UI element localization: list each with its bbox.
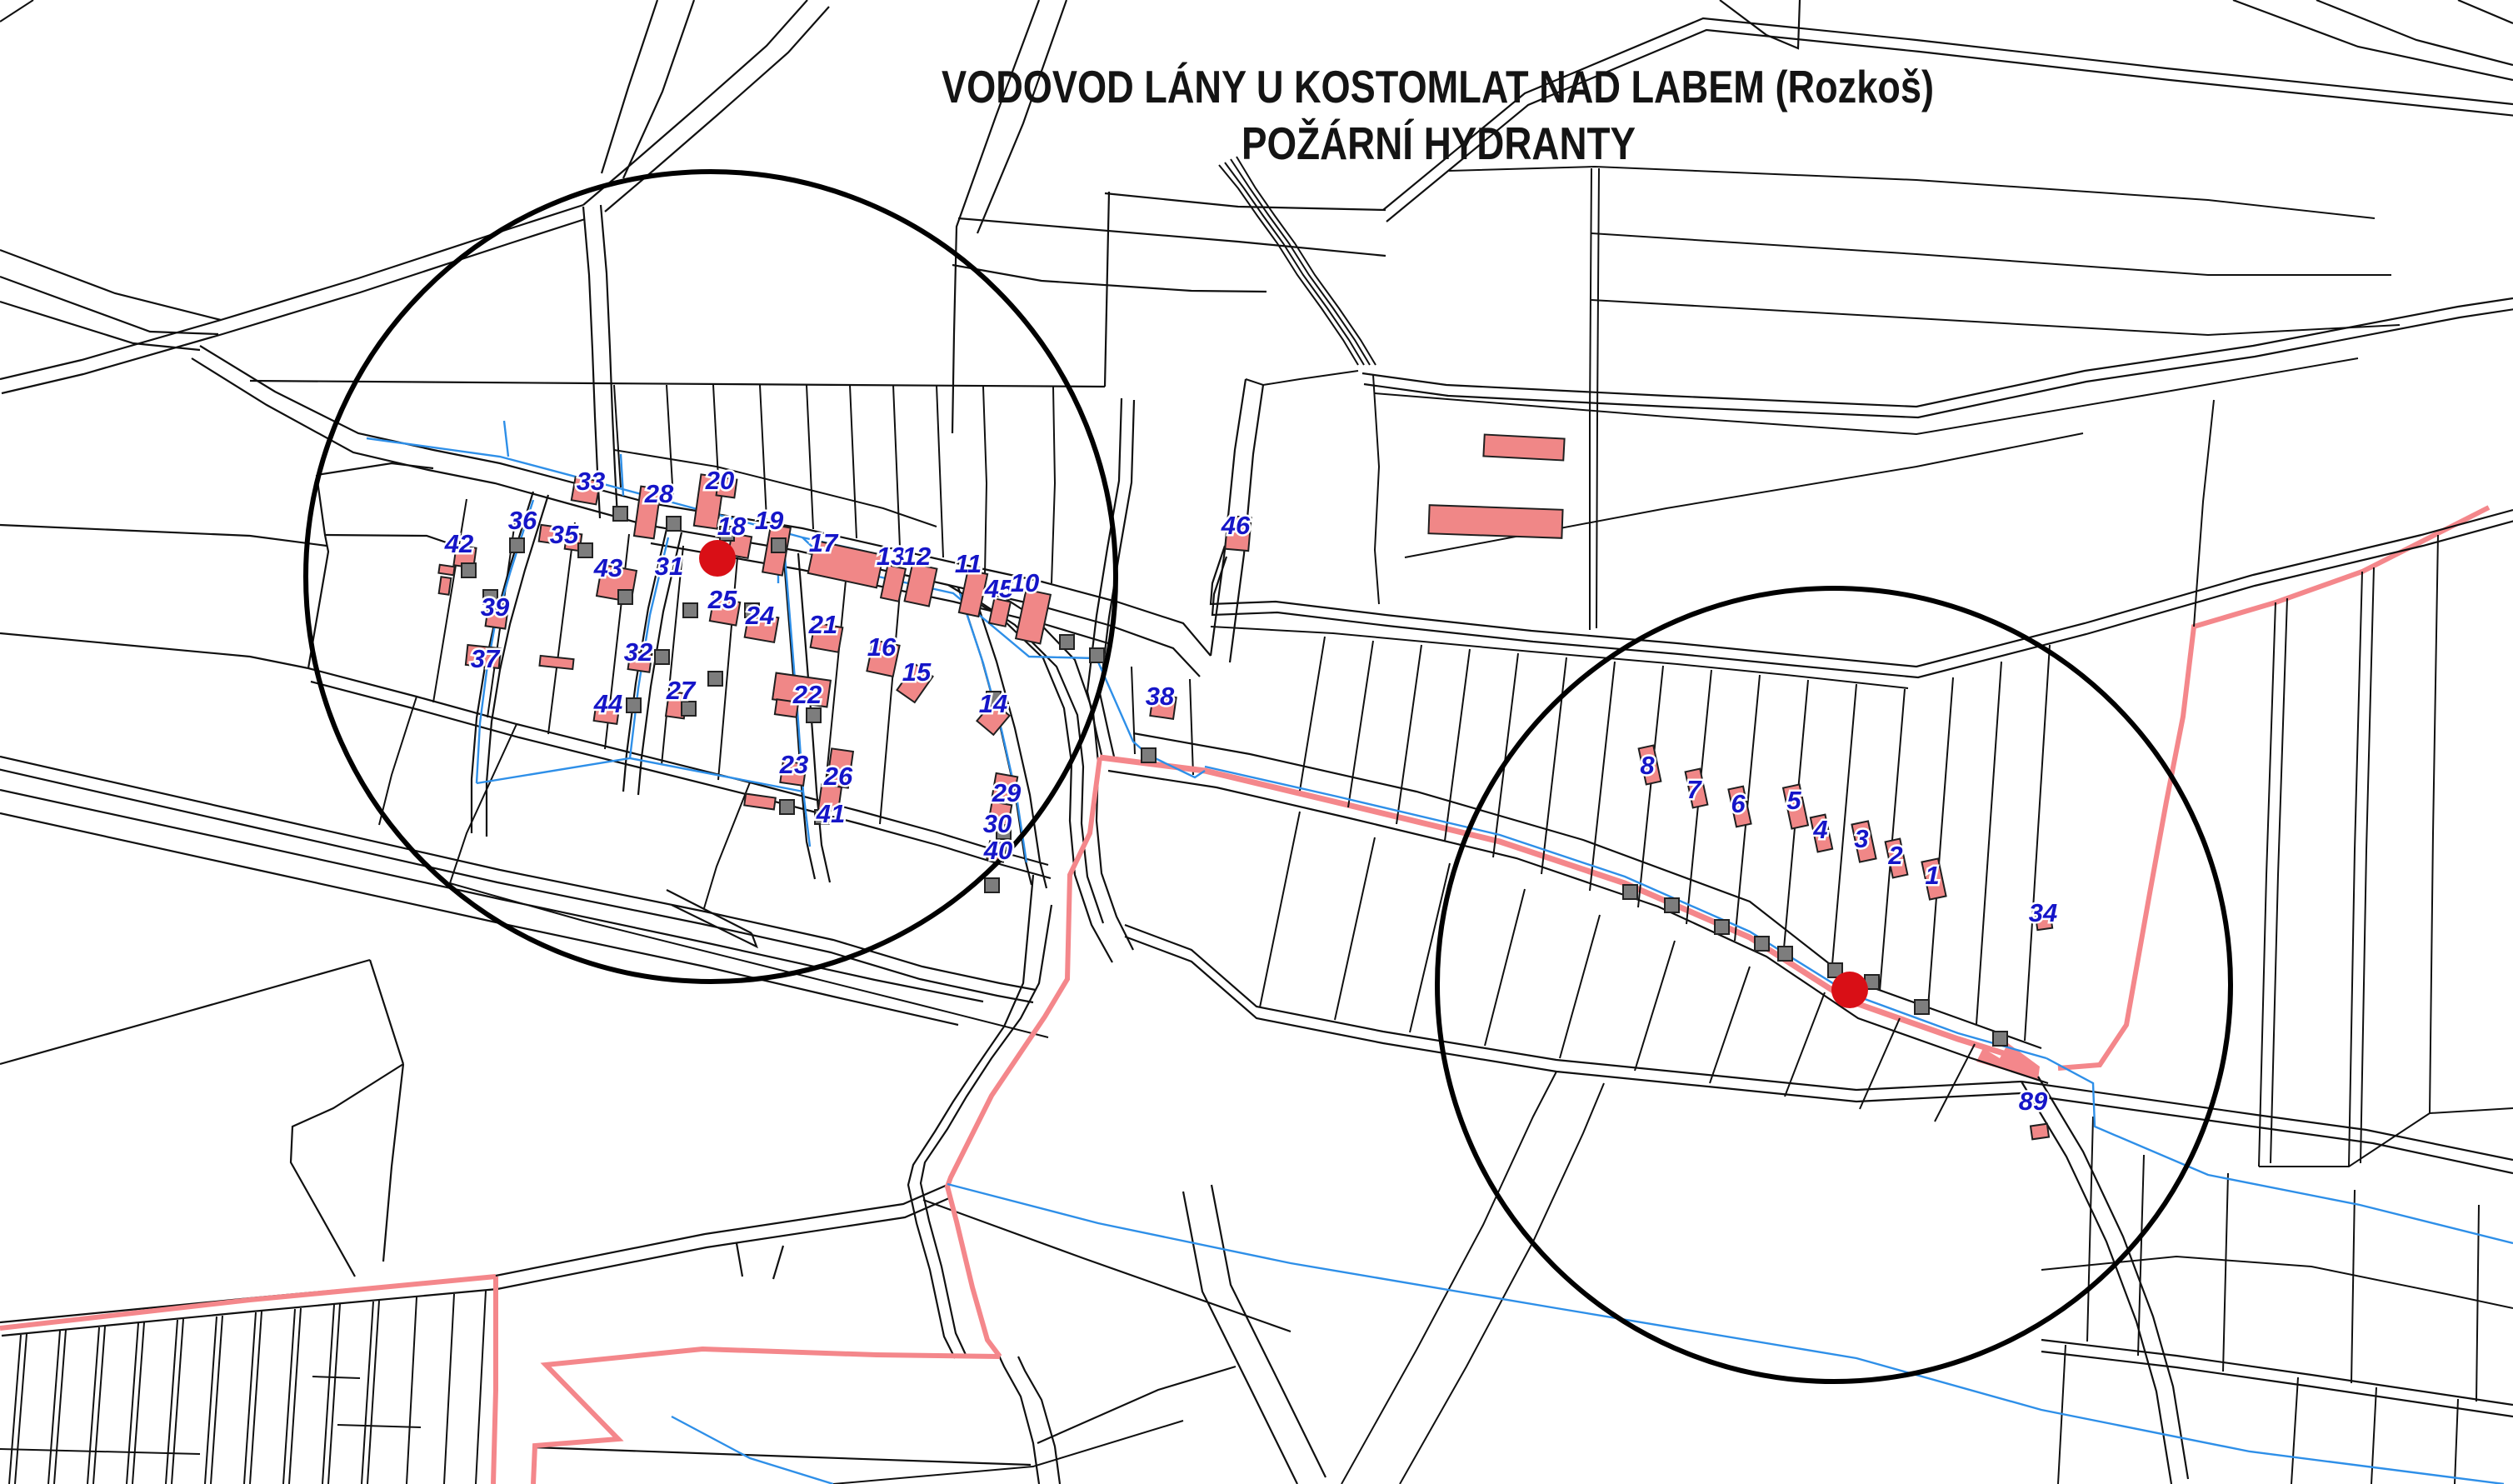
svg-text:32: 32 [624, 637, 652, 667]
svg-text:44: 44 [593, 689, 622, 718]
svg-text:21: 21 [808, 610, 837, 639]
svg-text:23: 23 [779, 750, 808, 779]
svg-text:10: 10 [1011, 568, 1039, 597]
svg-text:36: 36 [508, 506, 537, 535]
svg-text:37: 37 [471, 644, 501, 673]
svg-text:17: 17 [809, 528, 839, 557]
svg-text:34: 34 [2029, 898, 2057, 927]
svg-text:4: 4 [1812, 815, 1827, 844]
svg-text:46: 46 [1221, 511, 1251, 540]
svg-text:43: 43 [593, 553, 622, 582]
svg-text:18: 18 [717, 512, 747, 541]
svg-text:24: 24 [745, 601, 774, 630]
svg-text:20: 20 [705, 466, 734, 495]
svg-text:45: 45 [984, 574, 1014, 603]
svg-text:3: 3 [1854, 824, 1868, 853]
svg-text:41: 41 [816, 799, 845, 828]
svg-text:1: 1 [1925, 861, 1939, 890]
svg-text:VODOVOD LÁNY U KOSTOMLAT NAD L: VODOVOD LÁNY U KOSTOMLAT NAD LABEM (Rozk… [942, 61, 1934, 112]
svg-text:30: 30 [983, 809, 1012, 838]
svg-text:7: 7 [1686, 775, 1702, 804]
svg-text:38: 38 [1146, 682, 1175, 711]
svg-text:42: 42 [444, 529, 473, 558]
svg-text:16: 16 [867, 632, 897, 662]
svg-text:14: 14 [979, 689, 1007, 718]
svg-text:29: 29 [992, 778, 1022, 807]
svg-text:22: 22 [792, 680, 822, 709]
svg-text:28: 28 [644, 479, 674, 508]
svg-text:11: 11 [955, 549, 982, 578]
svg-text:31: 31 [655, 552, 683, 581]
svg-text:6: 6 [1731, 789, 1746, 818]
svg-text:2: 2 [1887, 841, 1902, 870]
svg-text:13: 13 [877, 542, 905, 571]
svg-text:26: 26 [823, 762, 853, 791]
svg-text:15: 15 [902, 657, 932, 687]
svg-text:27: 27 [666, 676, 697, 705]
svg-text:POŽÁRNÍ HYDRANTY: POŽÁRNÍ HYDRANTY [1242, 117, 1636, 169]
svg-text:19: 19 [755, 506, 784, 535]
svg-text:89: 89 [2019, 1087, 2048, 1116]
svg-text:25: 25 [707, 585, 737, 614]
svg-text:39: 39 [481, 592, 510, 622]
svg-text:40: 40 [983, 836, 1012, 865]
svg-text:33: 33 [577, 467, 605, 496]
svg-text:35: 35 [550, 520, 579, 549]
svg-text:5: 5 [1786, 786, 1801, 815]
svg-text:12: 12 [902, 542, 931, 571]
svg-text:8: 8 [1640, 751, 1655, 780]
